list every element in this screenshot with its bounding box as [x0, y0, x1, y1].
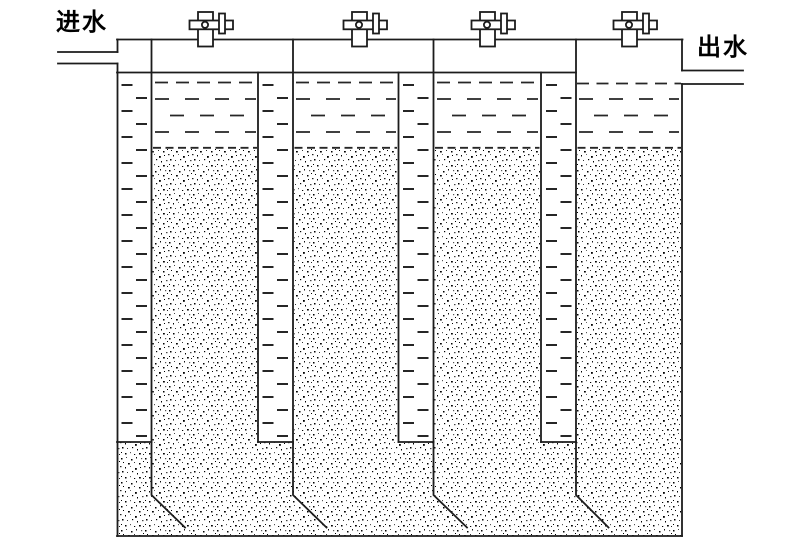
valve-3-body-bar — [472, 21, 516, 30]
valve-2-body-bar — [344, 21, 388, 30]
filter-media — [118, 149, 681, 536]
diagram-drawing: 进水 出水 — [0, 0, 800, 549]
valve-2-stem — [356, 22, 362, 28]
supernatant-water — [153, 83, 681, 148]
water-above-cell-3 — [435, 83, 540, 148]
water-above-cell-2 — [295, 83, 398, 148]
media-cell-3 — [435, 149, 541, 443]
inlet-pipe — [58, 52, 118, 64]
valve-2 — [344, 12, 388, 47]
valve-3 — [472, 12, 516, 47]
valve-3-stem — [484, 22, 490, 28]
outlet-pipe — [682, 71, 743, 85]
water-channel-3 — [409, 84, 424, 438]
water-channel-2 — [268, 84, 283, 438]
valve-1 — [190, 12, 234, 47]
valve-4-stem — [626, 22, 632, 28]
inlet-label: 进水 — [56, 9, 108, 36]
valve-3-side-flange — [501, 14, 507, 34]
valve-1-stem — [202, 22, 208, 28]
media-cell-2 — [294, 149, 398, 443]
valve-4-side-flange — [643, 14, 649, 34]
valve-4-body-bar — [614, 21, 658, 30]
filter-diagram: 进水 出水 — [0, 0, 800, 549]
water-channel-4 — [552, 84, 567, 438]
valve-2-riser-pipe — [352, 28, 367, 47]
valve-1-body-bar — [190, 21, 234, 30]
water-above-cell-1 — [153, 83, 257, 148]
media-cell-4 — [577, 149, 681, 443]
media-cell-1 — [153, 149, 258, 443]
valve-2-side-flange — [373, 14, 379, 34]
valve-1-riser-pipe — [198, 28, 213, 47]
valve-4-riser-pipe — [622, 28, 637, 47]
water-channel-1 — [127, 84, 142, 438]
media-bottom-layer — [118, 442, 681, 536]
valve-3-riser-pipe — [480, 28, 495, 47]
valve-1-side-flange — [219, 14, 225, 34]
valve-4 — [614, 12, 658, 47]
water-above-cell-4 — [577, 84, 681, 148]
outlet-label: 出水 — [697, 34, 749, 61]
